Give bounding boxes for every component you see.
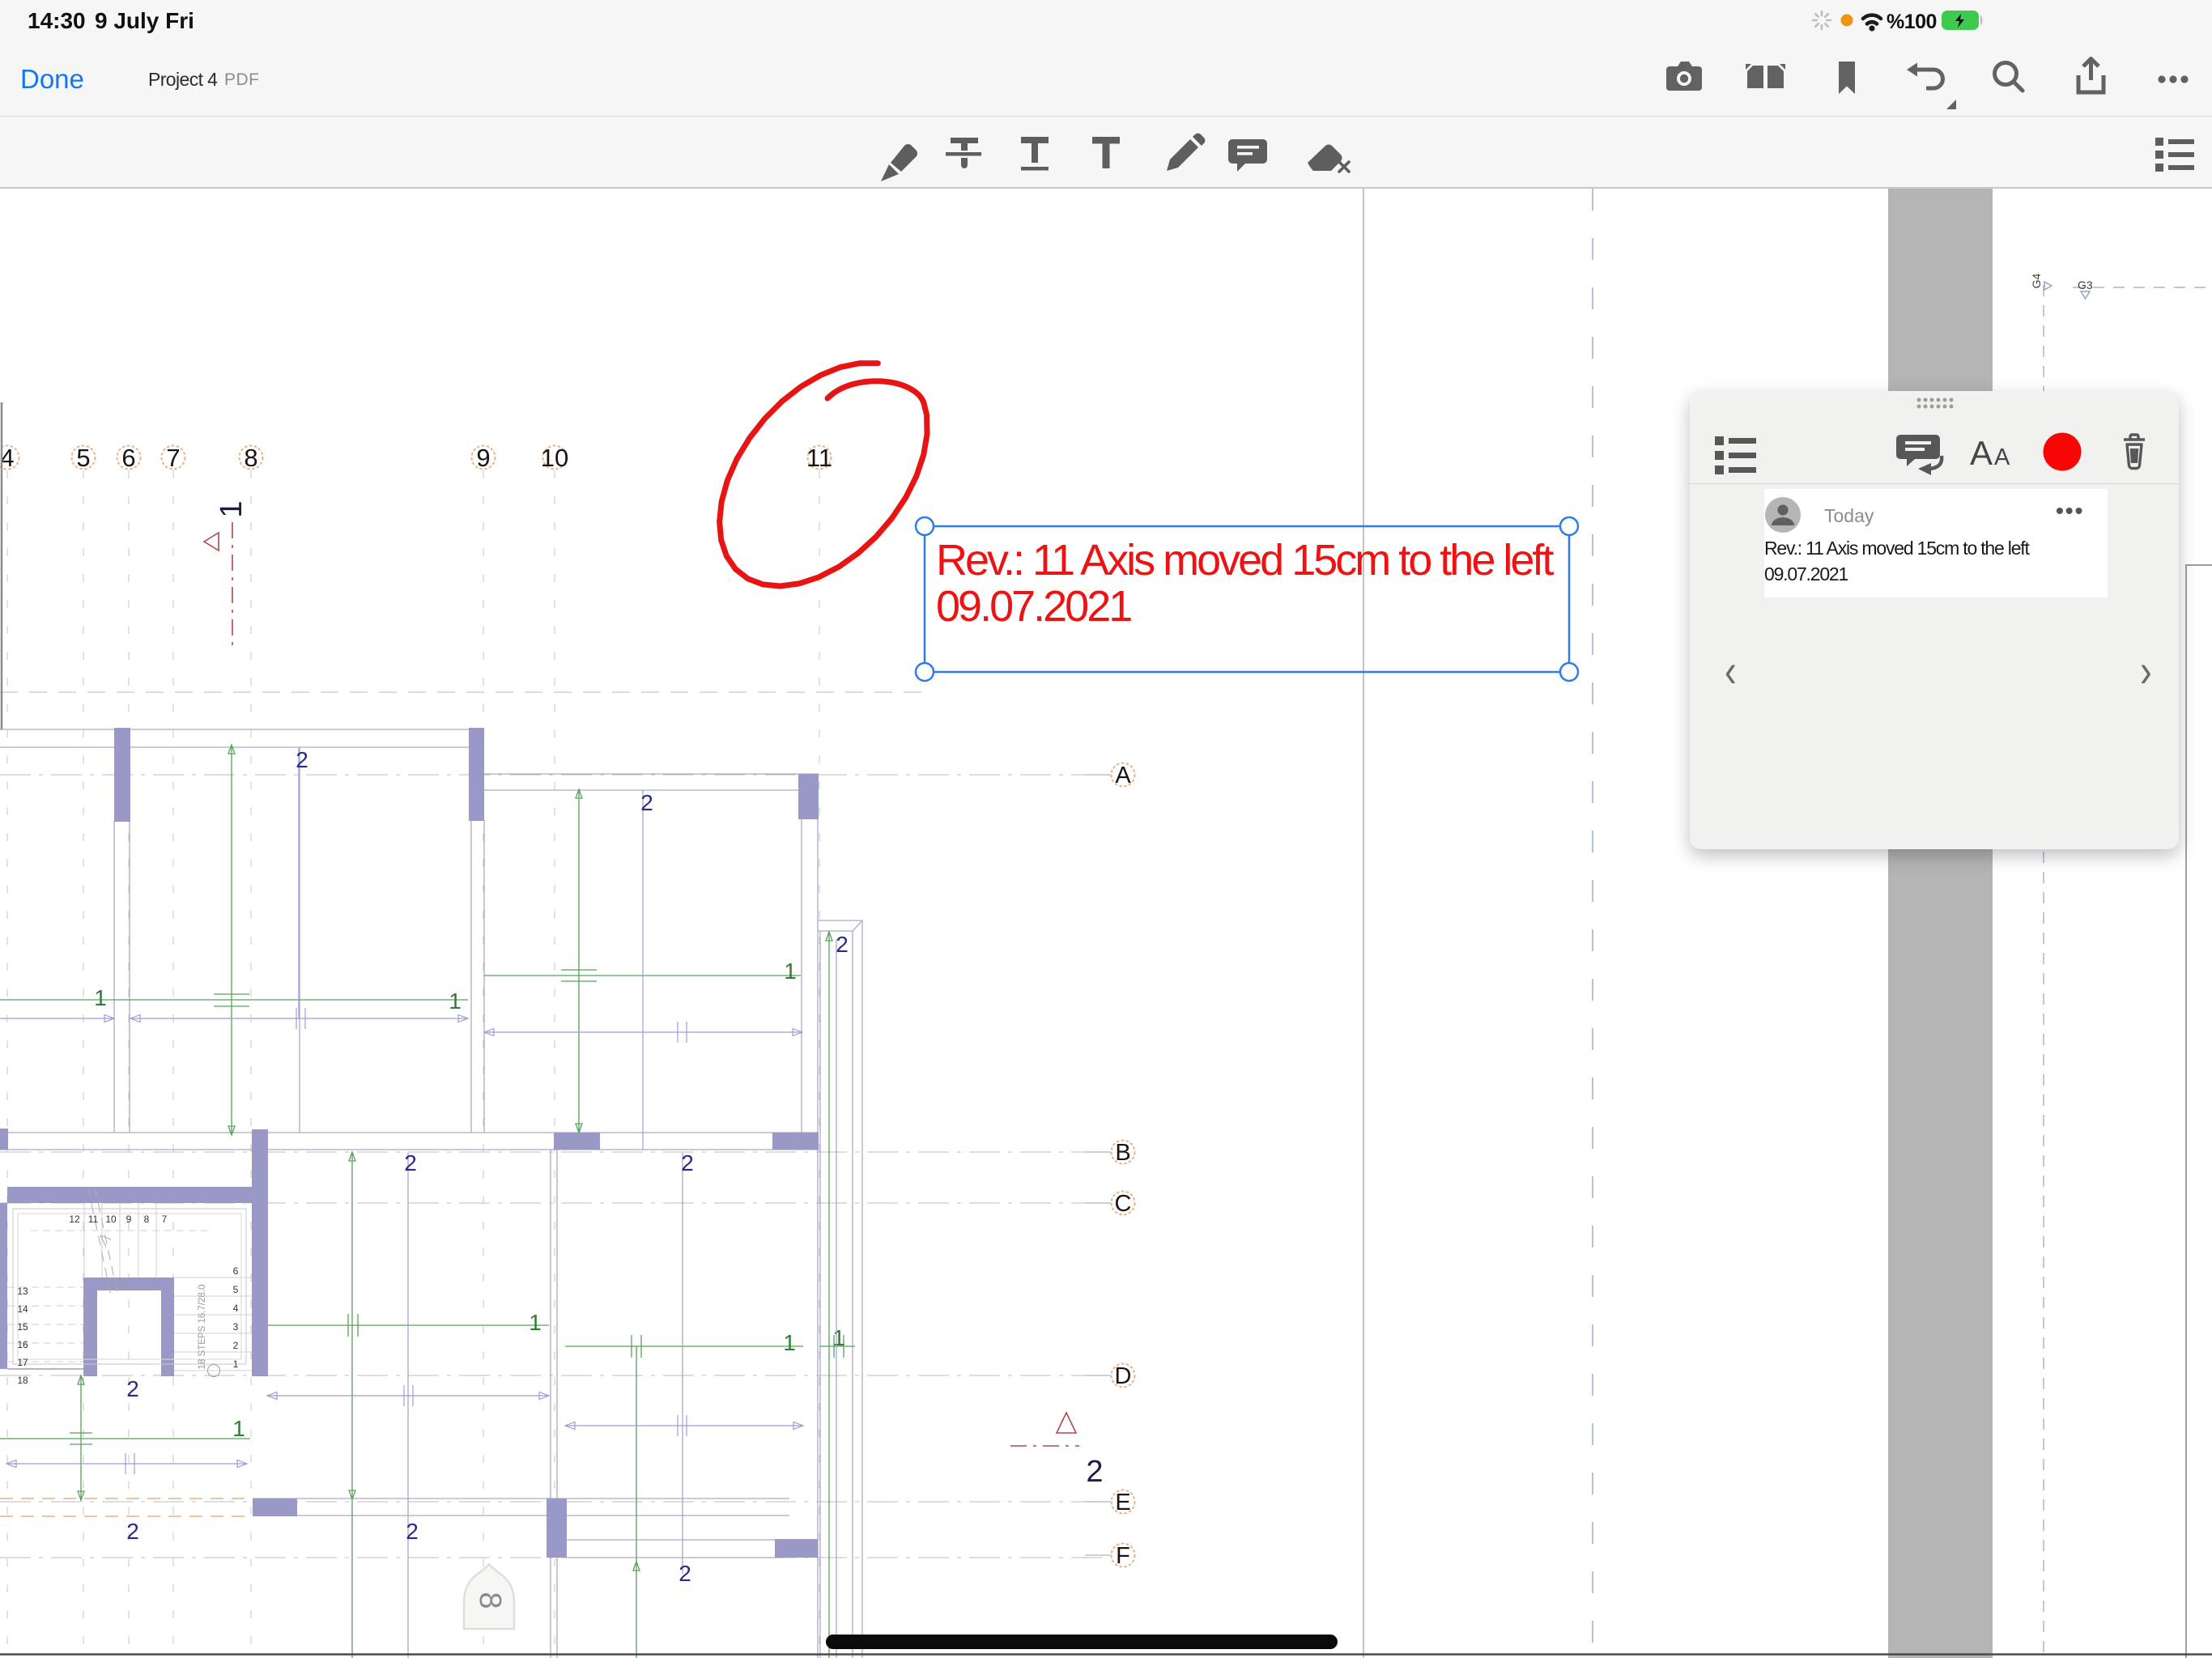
svg-text:12: 12	[69, 1214, 80, 1225]
svg-text:14: 14	[17, 1303, 28, 1315]
svg-text:3: 3	[233, 1321, 239, 1333]
svg-text:2: 2	[1086, 1455, 1103, 1489]
svg-text:15: 15	[17, 1321, 28, 1333]
svg-text:2: 2	[836, 932, 849, 957]
svg-text:A: A	[1994, 444, 2010, 470]
svg-text:5: 5	[233, 1284, 239, 1295]
svg-text:13: 13	[17, 1286, 28, 1297]
svg-text:2: 2	[404, 1150, 417, 1175]
svg-text:8: 8	[144, 1214, 150, 1225]
svg-text:1: 1	[232, 1416, 245, 1441]
svg-text:1: 1	[449, 988, 462, 1014]
svg-text:09.07.2021: 09.07.2021	[936, 582, 1131, 631]
svg-text:Rev.: 11 Axis moved 15cm to th: Rev.: 11 Axis moved 15cm to the left	[936, 536, 1554, 585]
svg-text:8: 8	[473, 1592, 507, 1609]
svg-text:1: 1	[529, 1310, 542, 1335]
svg-text:C: C	[1115, 1191, 1132, 1217]
svg-text:18 STEPS 16.7/28.0: 18 STEPS 16.7/28.0	[198, 1285, 207, 1370]
svg-text:1: 1	[94, 985, 107, 1010]
svg-text:1: 1	[233, 1358, 239, 1370]
svg-text:10: 10	[541, 444, 568, 472]
svg-text:7: 7	[166, 444, 180, 472]
svg-text:G4: G4	[2030, 273, 2043, 288]
svg-text:A: A	[1970, 434, 1993, 472]
svg-text:D: D	[1115, 1363, 1132, 1389]
svg-text:5: 5	[76, 444, 90, 472]
svg-text:F: F	[1116, 1543, 1130, 1569]
svg-text:2: 2	[126, 1376, 139, 1401]
svg-text:G3: G3	[2078, 278, 2093, 291]
svg-text:17: 17	[17, 1357, 28, 1368]
svg-text:16: 16	[17, 1339, 28, 1350]
svg-text:1: 1	[832, 1325, 845, 1350]
svg-text:6: 6	[233, 1265, 239, 1277]
svg-text:10: 10	[105, 1214, 117, 1225]
svg-text:2: 2	[126, 1519, 139, 1544]
svg-text:2: 2	[678, 1561, 691, 1586]
svg-text:2: 2	[640, 790, 653, 815]
svg-text:2: 2	[296, 747, 308, 772]
svg-text:E: E	[1115, 1490, 1130, 1516]
svg-text:9: 9	[126, 1214, 132, 1225]
svg-text:A: A	[1115, 763, 1131, 789]
svg-text:8: 8	[244, 444, 257, 472]
svg-text:2: 2	[406, 1519, 419, 1544]
svg-text:1: 1	[215, 500, 249, 517]
svg-text:9: 9	[476, 444, 490, 472]
svg-text:11: 11	[88, 1214, 99, 1225]
svg-text:2: 2	[233, 1340, 239, 1351]
svg-text:7: 7	[162, 1214, 168, 1225]
svg-text:2: 2	[681, 1150, 694, 1175]
svg-text:1: 1	[784, 959, 797, 984]
svg-text:11: 11	[806, 444, 832, 472]
svg-text:18: 18	[17, 1375, 28, 1386]
svg-text:B: B	[1115, 1140, 1130, 1166]
svg-text:6: 6	[121, 444, 135, 472]
svg-text:1: 1	[783, 1330, 796, 1355]
svg-text:4: 4	[233, 1303, 239, 1314]
